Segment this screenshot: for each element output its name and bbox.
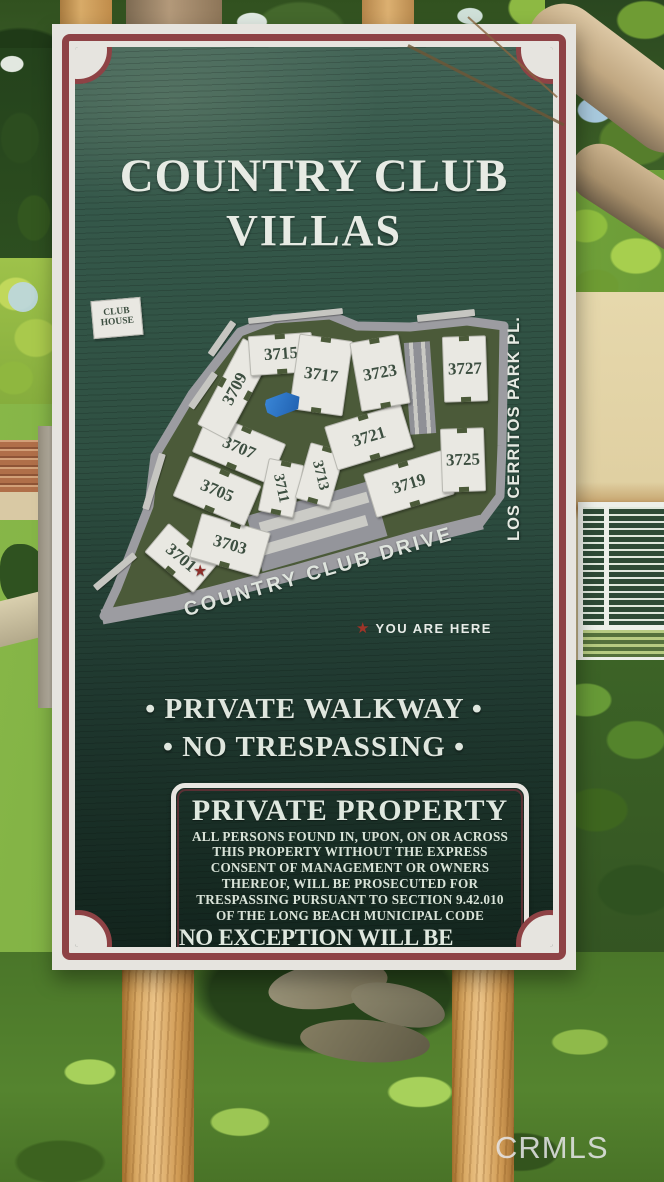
sign-title-line2: VILLAS [75, 205, 553, 256]
you-are-here-star-icon: ★ [356, 621, 369, 636]
clubhouse: CLUBHOUSE [90, 297, 143, 339]
window-blinds [583, 507, 664, 625]
private-property-body-line: OF THE LONG BEACH MUNICIPAL CODE [192, 908, 508, 924]
bright-bush-left [0, 258, 54, 404]
private-property-body-line: THIS PROPERTY WITHOUT THE EXPRESS [192, 844, 508, 860]
you-are-here-legend: ★ YOU ARE HERE [356, 621, 492, 636]
sign-title-line1: COUNTRY CLUB [75, 149, 553, 203]
private-property-plaque: PRIVATE PROPERTY ALL PERSONS FOUND IN, U… [171, 783, 529, 947]
private-property-body-line: TRESPASSING PURSUANT TO SECTION 9.42.010 [192, 892, 508, 908]
foliage-left [0, 48, 58, 280]
building-3727: 3727 [442, 335, 488, 402]
you-are-here-label: YOU ARE HERE [375, 621, 491, 636]
private-property-heading: PRIVATE PROPERTY [192, 795, 508, 827]
notice-no-trespassing: • NO TRESPASSING • [75, 731, 553, 764]
corner-ornament [75, 910, 112, 947]
building-3725: 3725 [440, 427, 486, 492]
window-divider [604, 507, 609, 625]
window-lower-pane [583, 630, 664, 657]
crmls-watermark: CRMLS [495, 1130, 609, 1166]
building-window [578, 502, 664, 662]
private-property-body-line: THEREOF, WILL BE PROSECUTED FOR [192, 876, 508, 892]
no-exception-line: NO EXCEPTION WILL BE MADE [179, 925, 521, 947]
site-map: 3701370337053707370937113713371537173719… [92, 299, 553, 665]
private-property-body: ALL PERSONS FOUND IN, UPON, ON OR ACROSS… [192, 829, 508, 924]
private-property-inner: PRIVATE PROPERTY ALL PERSONS FOUND IN, U… [177, 789, 523, 947]
sign-board: COUNTRY CLUB VILLAS 37013703370537073709 [52, 24, 576, 970]
private-property-body-line: CONSENT OF MANAGEMENT OR OWNERS [192, 860, 508, 876]
private-property-body-line: ALL PERSONS FOUND IN, UPON, ON OR ACROSS [192, 829, 508, 845]
sign-post-left [122, 958, 194, 1182]
sky-glimpse [8, 282, 38, 312]
street-label-los-cerritos-park-pl: LOS CERRITOS PARK PL. [505, 301, 524, 541]
map-location-star-icon: ★ [193, 561, 207, 581]
corner-ornament [75, 47, 112, 84]
sign-green-panel: COUNTRY CLUB VILLAS 37013703370537073709 [75, 47, 553, 947]
photo-scene: COUNTRY CLUB VILLAS 37013703370537073709 [0, 0, 664, 1182]
notice-private-walkway: • PRIVATE WALKWAY • [75, 693, 553, 726]
